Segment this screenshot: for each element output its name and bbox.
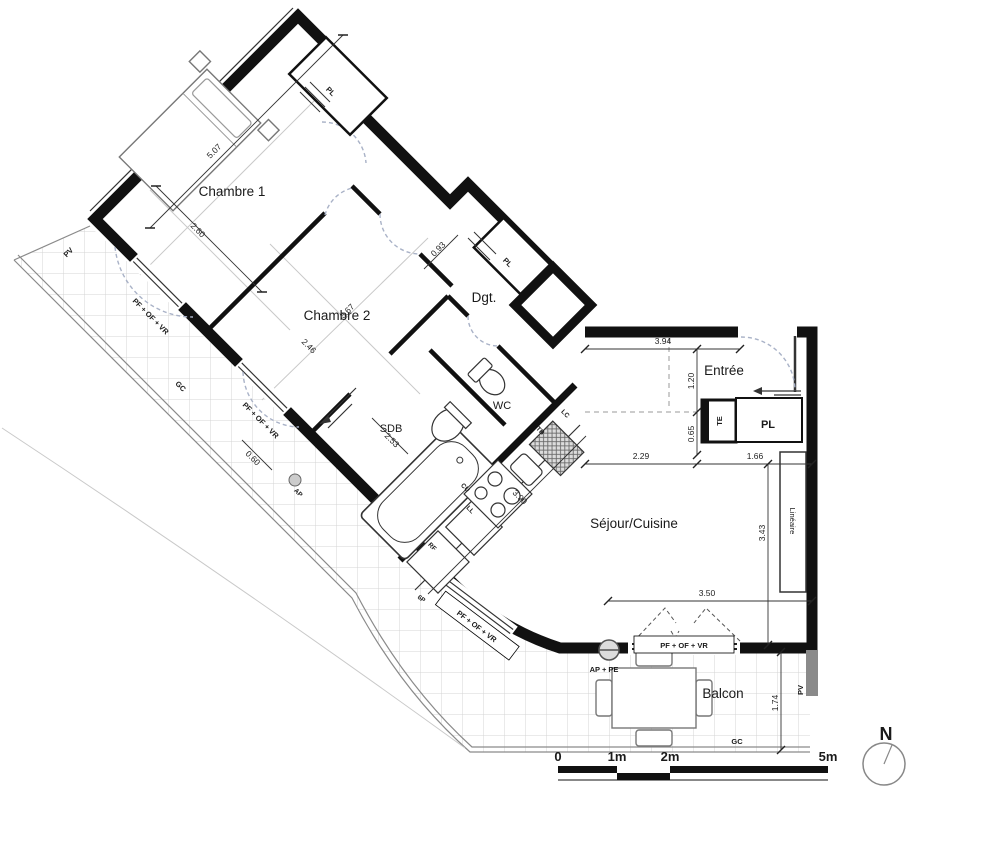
floor-plan-drawing: Chambre 1 Chambre 2 Dgt. SDB WC Entrée S… bbox=[0, 0, 1000, 857]
dim-3-94: 3.94 bbox=[655, 336, 672, 346]
dim-2-29: 2.29 bbox=[633, 451, 650, 461]
closet-label-te: TE bbox=[715, 416, 724, 426]
window-label-4-box: PF + OF + VR bbox=[634, 636, 734, 653]
scale-tick-5m: 5m bbox=[819, 749, 838, 764]
label-ap-pe: AP + PE bbox=[590, 665, 619, 674]
scale-tick-2m: 2m bbox=[661, 749, 680, 764]
label-gc-bottom: GC bbox=[731, 737, 743, 746]
dim-1-74: 1.74 bbox=[770, 694, 780, 711]
rain-pipe-balcony bbox=[599, 640, 619, 660]
label-pv-right: PV bbox=[796, 685, 805, 695]
dim-0-65: 0.65 bbox=[686, 425, 696, 442]
floor-plan-page: Chambre 1 Chambre 2 Dgt. SDB WC Entrée S… bbox=[0, 0, 1000, 857]
scale-tick-0: 0 bbox=[554, 749, 561, 764]
closet-label-pl3: PL bbox=[761, 419, 775, 431]
window-label-4: PF + OF + VR bbox=[660, 641, 708, 650]
wall-stub bbox=[806, 650, 818, 696]
rain-pipe-left bbox=[289, 474, 301, 486]
room-label-sejour: Séjour/Cuisine bbox=[590, 516, 678, 531]
dim-3-50: 3.50 bbox=[699, 588, 716, 598]
room-label-degagement: Dgt. bbox=[472, 290, 497, 305]
room-label-wc: WC bbox=[493, 400, 511, 412]
dim-1-66: 1.66 bbox=[747, 451, 764, 461]
label-lineaire: Linéaire bbox=[788, 508, 797, 535]
room-label-chambre2: Chambre 2 bbox=[304, 308, 371, 323]
dim-3-43: 3.43 bbox=[757, 524, 767, 541]
dim-1-20: 1.20 bbox=[686, 372, 696, 389]
north-label: N bbox=[880, 724, 893, 744]
room-label-chambre1: Chambre 1 bbox=[199, 184, 266, 199]
room-label-entree: Entrée bbox=[704, 363, 744, 378]
scale-tick-1m: 1m bbox=[608, 749, 627, 764]
room-label-balcon: Balcon bbox=[702, 686, 743, 701]
